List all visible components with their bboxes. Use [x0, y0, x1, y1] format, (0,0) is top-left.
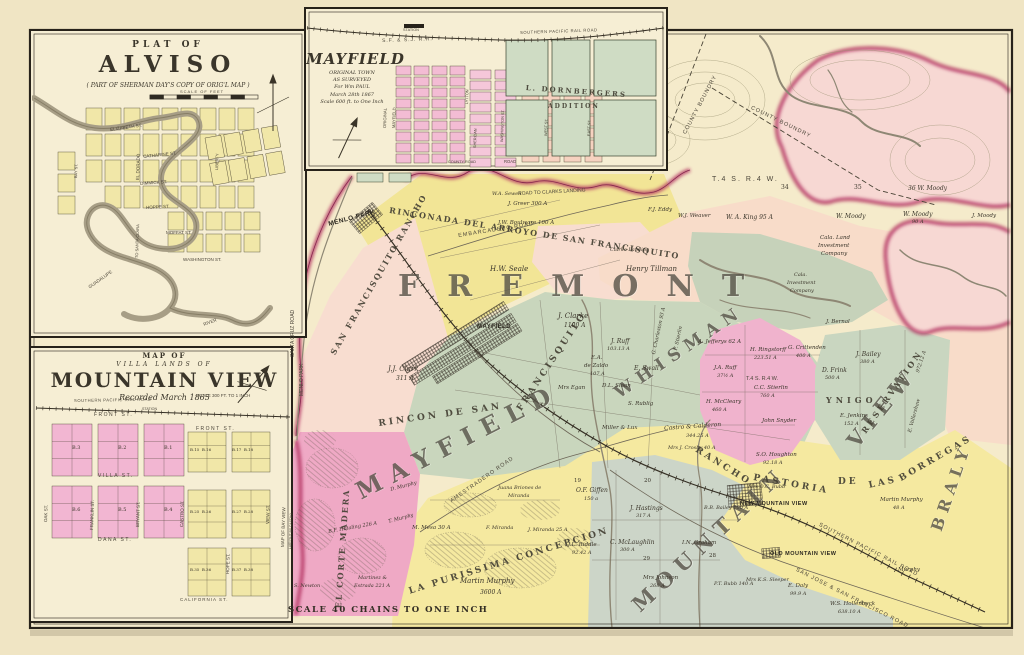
alviso-inset-title: PLAT OF ALVISO ( PART OF SHERMAN DAY'S C… [30, 40, 306, 90]
mayfield-title: MAYFIELD [306, 50, 398, 69]
alviso-title: ALVISO [30, 51, 306, 80]
mountain-view-inset-title: MAP OF VILLA LANDS OF MOUNTAIN VIEW Reco… [42, 352, 287, 403]
mayfield-subtitle-line: For Wm PAUL [306, 84, 398, 90]
mv-title-small: MAP OF [42, 352, 287, 361]
map-artwork [0, 0, 1024, 655]
antique-map-sheet: PLAT OF ALVISO ( PART OF SHERMAN DAY'S C… [0, 0, 1024, 655]
mayfield-subtitle-line: March 28th 1867 [306, 92, 398, 98]
mv-title-mid: VILLA LANDS OF [42, 361, 287, 369]
mv-title: MOUNTAIN VIEW [42, 368, 287, 393]
alviso-subtitle: ( PART OF SHERMAN DAY'S COPY OF ORIG'L M… [30, 82, 306, 90]
alviso-title-small: PLAT OF [30, 40, 306, 51]
mayfield-subtitle-line: Scale 600 ft. to One Inch [306, 99, 398, 105]
mayfield-inset-title: MAYFIELD ORIGINAL TOWN AS SURVEYED For W… [306, 50, 398, 105]
mayfield-subtitle-line: AS SURVEYED [306, 77, 398, 83]
mv-subtitle: Recorded March 1865 [42, 393, 287, 403]
mayfield-subtitle-line: ORIGINAL TOWN [306, 70, 398, 76]
